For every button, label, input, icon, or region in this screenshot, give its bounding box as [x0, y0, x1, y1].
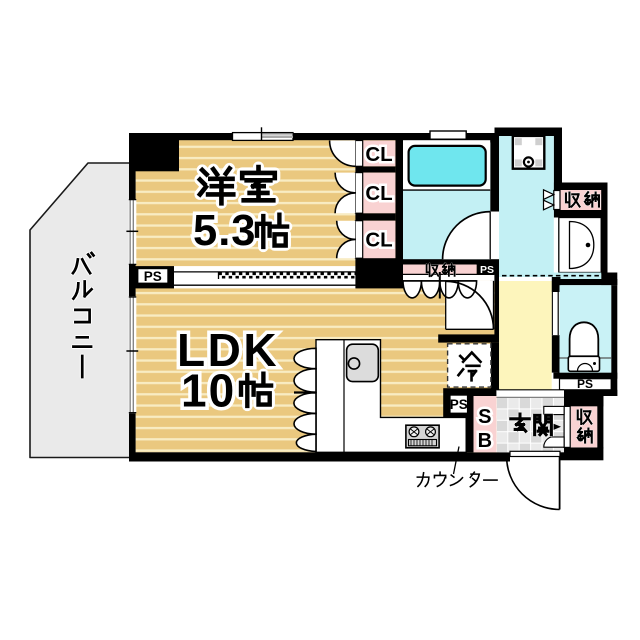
svg-text:PS: PS — [450, 397, 468, 412]
svg-text:B: B — [478, 430, 492, 452]
svg-text:10: 10 — [181, 365, 236, 417]
svg-text:5.3: 5.3 — [193, 207, 256, 255]
svg-text:S: S — [478, 406, 491, 428]
svg-text:PS: PS — [144, 269, 162, 284]
svg-text:CL: CL — [365, 229, 392, 252]
svg-text:CL: CL — [365, 143, 392, 166]
svg-text:CL: CL — [365, 182, 392, 205]
svg-text:PS: PS — [577, 377, 593, 391]
